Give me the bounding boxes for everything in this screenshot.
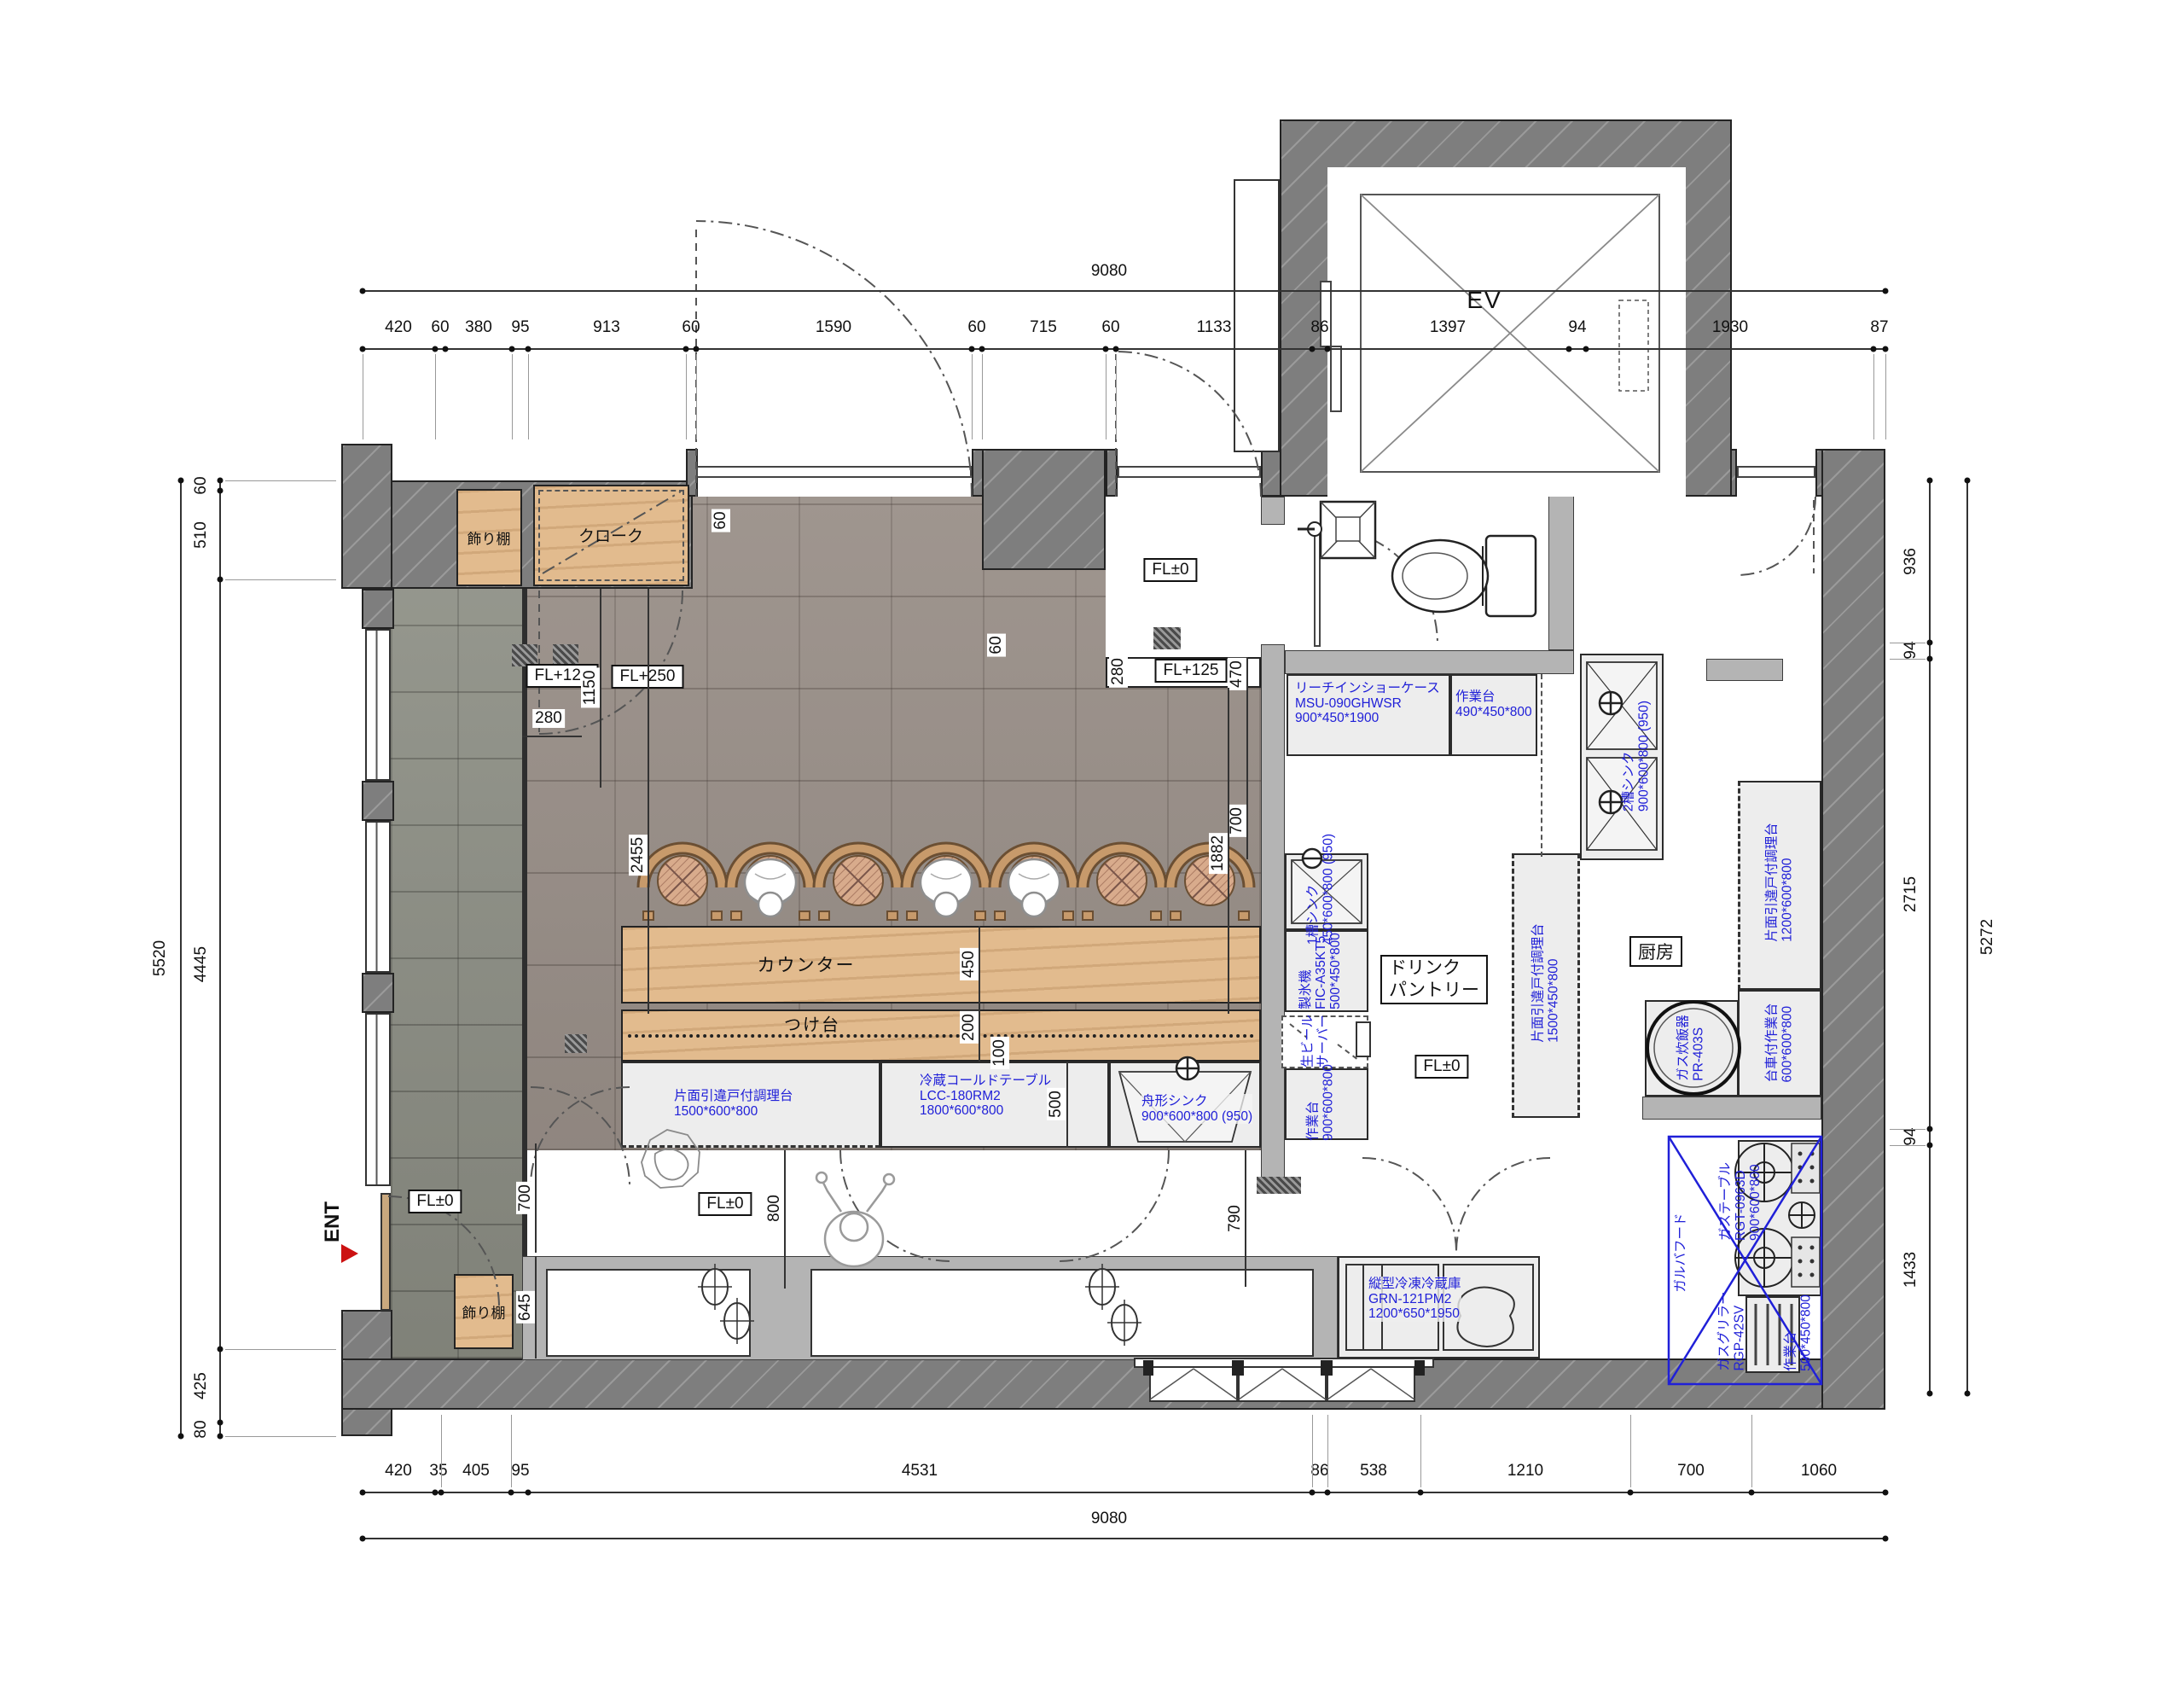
dim-500: 500 bbox=[1047, 1088, 1066, 1120]
extension-line bbox=[686, 354, 687, 439]
eq-line: GRN-121PM2 bbox=[1368, 1292, 1461, 1307]
eq-cold-table-label: 冷蔵コールドテーブル LCC-180RM2 1800*600*800 bbox=[920, 1073, 1051, 1119]
extension-line bbox=[1630, 1415, 1631, 1487]
wall-stub bbox=[565, 1034, 587, 1053]
dim-bottom-3: 95 bbox=[511, 1462, 529, 1481]
dim-top-11: 86 bbox=[1310, 318, 1328, 337]
dim-dot bbox=[1310, 1490, 1316, 1496]
service-aisle-floor bbox=[522, 1150, 1261, 1256]
dim-dot bbox=[218, 488, 224, 494]
dim-line bbox=[535, 1256, 537, 1358]
dim-line bbox=[1966, 480, 1968, 1393]
dim-dot bbox=[1927, 478, 1933, 484]
dim-dot bbox=[443, 346, 449, 352]
dim-dot bbox=[1965, 478, 1971, 484]
dim-280b: 280 bbox=[1109, 655, 1128, 688]
dim-line bbox=[600, 589, 601, 788]
eq-cabinet-a-label: 片面引違戸付調理台 1500*450*800 bbox=[1531, 923, 1561, 1043]
eq-line: 1200*600*800 bbox=[1780, 823, 1795, 942]
dim-bottom-2: 405 bbox=[462, 1462, 490, 1481]
dim-dot bbox=[1927, 1391, 1933, 1397]
extension-line bbox=[1751, 1415, 1752, 1487]
dim-line bbox=[522, 736, 582, 737]
dim-right-2: 2715 bbox=[1902, 876, 1920, 912]
dim-overall-left: 5520 bbox=[151, 940, 170, 976]
dim-top-5: 60 bbox=[682, 318, 700, 337]
dim-overall-bottom: 9080 bbox=[1091, 1510, 1127, 1528]
eq-line: 作業台 bbox=[1306, 1064, 1321, 1141]
dim-dot bbox=[969, 346, 975, 352]
dim-dot bbox=[526, 346, 531, 352]
dim-top-6: 1590 bbox=[816, 318, 851, 337]
eq-line: 600*600*800 bbox=[1780, 1003, 1795, 1082]
dim-dot bbox=[360, 1490, 366, 1496]
dim-dot bbox=[508, 1490, 514, 1496]
dim-line bbox=[1245, 1150, 1246, 1287]
label-fl0-corridor: FL±0 bbox=[408, 1190, 462, 1213]
dim-top-10: 1133 bbox=[1197, 318, 1232, 337]
dim-280a: 280 bbox=[532, 709, 565, 728]
left-glazing-a bbox=[365, 629, 391, 781]
toilet-door-leaf bbox=[1314, 527, 1321, 647]
dim-bottom-4: 4531 bbox=[902, 1462, 938, 1481]
dim-bottom-8: 700 bbox=[1677, 1462, 1705, 1481]
eq-line: 1500*600*800 bbox=[674, 1104, 793, 1120]
ev-hall-notch bbox=[1234, 179, 1280, 452]
eq-line: 1800*600*800 bbox=[920, 1103, 1051, 1119]
dim-2455: 2455 bbox=[629, 835, 648, 876]
entrance-door-leaf bbox=[380, 1193, 391, 1311]
dim-dot bbox=[1883, 1490, 1889, 1496]
dim-dot bbox=[1628, 1490, 1634, 1496]
dim-bottom-0: 420 bbox=[385, 1462, 412, 1481]
dim-line bbox=[979, 926, 980, 1062]
eq-line: 900*600*800 (950) bbox=[1141, 1109, 1252, 1125]
extension-line bbox=[1890, 1145, 1926, 1146]
extension-line bbox=[441, 1415, 442, 1487]
eq-line: 1200*650*1950 bbox=[1368, 1306, 1461, 1322]
label-kitchen: 厨房 bbox=[1629, 936, 1682, 967]
dim-dot bbox=[683, 346, 689, 352]
extension-line bbox=[511, 1415, 512, 1487]
dim-line bbox=[1929, 480, 1931, 1393]
wall-corridor-upper bbox=[1261, 497, 1285, 525]
extension-line bbox=[1106, 354, 1107, 439]
dim-line bbox=[363, 290, 1885, 292]
dim-dot bbox=[218, 1347, 224, 1353]
dim-dot bbox=[218, 478, 224, 484]
dim-right-0: 936 bbox=[1902, 548, 1920, 575]
eq-line: 片面引違戸付調理台 bbox=[674, 1089, 793, 1104]
eq-line: 2槽シンク bbox=[1622, 701, 1637, 812]
tsukedai-dotted-line bbox=[628, 1034, 1254, 1038]
left-pillar-3 bbox=[362, 973, 394, 1013]
extension-line bbox=[225, 480, 336, 481]
dim-dot bbox=[979, 346, 985, 352]
dim-left-4: 80 bbox=[192, 1420, 211, 1438]
dim-dot bbox=[1927, 656, 1933, 662]
eq-line: サーバー bbox=[1316, 1015, 1331, 1068]
extension-line bbox=[225, 1436, 336, 1437]
eq-line: 作業台 bbox=[1784, 1294, 1799, 1371]
eq-hood-label: ガルバフード bbox=[1673, 1213, 1688, 1292]
dim-60a: 60 bbox=[712, 509, 730, 532]
eq-rice-cooker-label: ガス炊飯器 PR-403S bbox=[1676, 1015, 1706, 1081]
dim-200: 200 bbox=[960, 1011, 979, 1044]
dim-450: 450 bbox=[960, 948, 979, 980]
wall-left-top-corner bbox=[341, 444, 392, 589]
dim-top-2: 380 bbox=[465, 318, 492, 337]
eq-line: 500*450*800 bbox=[1798, 1294, 1814, 1371]
extension-line bbox=[435, 354, 436, 439]
wall-stub bbox=[1257, 1177, 1301, 1194]
dim-dot bbox=[1310, 346, 1316, 352]
dim-dot bbox=[1113, 346, 1119, 352]
wall-right bbox=[1821, 449, 1885, 1410]
dim-dot bbox=[218, 1434, 224, 1440]
dim-470: 470 bbox=[1228, 658, 1246, 690]
eq-beer-server-label: 生ビール サーバー bbox=[1301, 1015, 1331, 1068]
dim-700a: 700 bbox=[1228, 805, 1246, 837]
top-door-frame-3 bbox=[1737, 466, 1815, 478]
eq-worktable900-label: 作業台 900*600*800 bbox=[1306, 1064, 1336, 1141]
dim-dot bbox=[1103, 346, 1109, 352]
dim-line bbox=[1246, 738, 1248, 859]
eq-freezer-label: 縦型冷凍冷蔵庫 GRN-121PM2 1200*650*1950 bbox=[1368, 1277, 1461, 1322]
extension-line bbox=[1312, 1415, 1313, 1487]
dim-line bbox=[219, 480, 221, 1436]
dim-dot bbox=[178, 1434, 184, 1440]
eq-line: 900*600*800 bbox=[1321, 1064, 1336, 1141]
label-ent: ENT bbox=[321, 1201, 345, 1242]
toilet-wall-bottom bbox=[1285, 650, 1574, 674]
eq-line: ガス炊飯器 bbox=[1676, 1015, 1692, 1081]
extension-line bbox=[512, 354, 513, 439]
kitchen-dashed-divider bbox=[1541, 674, 1542, 857]
bottom-niche-1 bbox=[546, 1269, 751, 1357]
label-drink-line2: パントリー bbox=[1389, 980, 1479, 1002]
corridor-divider-line bbox=[522, 589, 527, 1358]
dim-dot bbox=[360, 288, 366, 294]
extension-line bbox=[696, 354, 697, 439]
eq-line: 500*450*800 bbox=[1328, 933, 1344, 1009]
dim-line bbox=[363, 1492, 1885, 1493]
dim-bottom-5: 86 bbox=[1310, 1462, 1328, 1481]
eq-line: MSU-090GHWSR bbox=[1295, 696, 1440, 712]
dim-left-3: 425 bbox=[192, 1372, 211, 1399]
eq-line: 900*600*800 bbox=[1748, 1162, 1763, 1241]
eq-gas-table-label: ガステーブル RGT-0963D 900*600*800 bbox=[1718, 1162, 1763, 1241]
wall-bottom bbox=[341, 1358, 1885, 1410]
ev-shaft-interior bbox=[1327, 167, 1686, 497]
eq-two-bowl-sink-label: 2槽シンク 900*600*800 (950) bbox=[1622, 701, 1652, 812]
dim-dot bbox=[439, 1490, 444, 1496]
eq-line: ガスグリラー bbox=[1717, 1291, 1733, 1370]
eq-line: 台車付作業台 bbox=[1765, 1003, 1780, 1082]
eq-line: リーチインショーケース bbox=[1295, 681, 1440, 696]
extension-line bbox=[1885, 354, 1886, 439]
dim-top-0: 420 bbox=[385, 318, 412, 337]
eq-line: 縦型冷凍冷蔵庫 bbox=[1368, 1277, 1461, 1292]
dim-line bbox=[535, 1143, 537, 1253]
label-counter: カウンター bbox=[758, 951, 856, 977]
floor-plan-canvas: クローク 飾り棚 飾り棚 EV カウンター つけ台 FL±0 FL±0 FL±0… bbox=[0, 0, 2184, 1693]
eq-line: 舟形シンク bbox=[1141, 1094, 1252, 1109]
dim-top-9: 60 bbox=[1101, 318, 1119, 337]
label-fl0-aisle: FL±0 bbox=[698, 1192, 752, 1216]
dim-top-12: 1397 bbox=[1430, 318, 1466, 337]
dim-top-8: 715 bbox=[1030, 318, 1057, 337]
dim-right-4: 1433 bbox=[1902, 1252, 1920, 1288]
eq-line: 生ビール bbox=[1301, 1015, 1316, 1068]
wall-top-post-2 bbox=[972, 449, 984, 497]
extension-line bbox=[363, 354, 363, 439]
ent-arrow-icon bbox=[341, 1244, 358, 1263]
wall-stub bbox=[1153, 627, 1181, 649]
counter-top bbox=[621, 926, 1261, 1004]
dim-1150: 1150 bbox=[581, 668, 600, 708]
wall-corridor-lower bbox=[1261, 644, 1285, 1186]
eq-griller-label: ガスグリラー RGP-42SV bbox=[1717, 1291, 1747, 1370]
dim-100: 100 bbox=[990, 1037, 1009, 1069]
gas-zone-sill bbox=[1642, 1097, 1821, 1120]
dim-top-14: 1930 bbox=[1712, 318, 1748, 337]
label-drink-pantry: ドリンク パントリー bbox=[1380, 955, 1488, 1004]
extension-line bbox=[972, 354, 973, 439]
dim-overall-top: 9080 bbox=[1091, 262, 1127, 281]
label-shelf-bottom: 飾り棚 bbox=[456, 1300, 513, 1324]
dim-dot bbox=[1871, 346, 1877, 352]
extension-line bbox=[1890, 643, 1926, 643]
eq-line: 作業台 bbox=[1455, 689, 1532, 705]
label-fl0-vestibule: FL±0 bbox=[1143, 558, 1197, 582]
dim-dot bbox=[1965, 1391, 1971, 1397]
dim-right-3: 94 bbox=[1902, 1127, 1920, 1145]
dim-line bbox=[784, 1150, 786, 1289]
left-glazing-c bbox=[365, 1013, 391, 1186]
eq-line: 900*600*800 (950) bbox=[1636, 701, 1652, 812]
eq-line: 冷蔵コールドテーブル bbox=[920, 1073, 1051, 1089]
extension-line bbox=[1873, 354, 1874, 439]
wall-top-pier bbox=[982, 449, 1106, 570]
dim-line bbox=[180, 480, 182, 1436]
dim-top-15: 87 bbox=[1870, 318, 1888, 337]
dim-dot bbox=[433, 346, 439, 352]
extension-line bbox=[528, 354, 529, 439]
extension-line bbox=[1890, 1129, 1926, 1130]
dim-bottom-1: 35 bbox=[429, 1462, 447, 1481]
dim-dot bbox=[1583, 346, 1589, 352]
eq-showcase-label: リーチインショーケース MSU-090GHWSR 900*450*1900 bbox=[1295, 681, 1440, 726]
eq-cabinet-b-label: 片面引違戸付調理台 1200*600*800 bbox=[1765, 823, 1795, 942]
eq-line: 490*450*800 bbox=[1455, 705, 1532, 720]
extension-line bbox=[1116, 354, 1117, 439]
dim-dot bbox=[1927, 1126, 1933, 1132]
extension-line bbox=[982, 354, 983, 439]
left-glazing-b bbox=[365, 821, 391, 973]
eq-line: FIC-A35KT5 bbox=[1313, 933, 1328, 1009]
label-shelf-top: 飾り棚 bbox=[461, 527, 518, 550]
dim-line bbox=[1228, 688, 1229, 1014]
eq-line: PR-403S bbox=[1691, 1015, 1706, 1081]
eq-line: 450*600*800 (950) bbox=[1321, 834, 1336, 945]
dim-top-1: 60 bbox=[431, 318, 449, 337]
left-pillar-1 bbox=[362, 589, 394, 629]
dim-dot bbox=[1883, 346, 1889, 352]
eq-line: ガステーブル bbox=[1718, 1162, 1734, 1241]
dim-dot bbox=[360, 346, 366, 352]
dim-bottom-9: 1060 bbox=[1801, 1462, 1837, 1481]
dim-dot bbox=[526, 1490, 531, 1496]
dim-dot bbox=[1749, 1490, 1755, 1496]
dim-line bbox=[363, 348, 1885, 350]
dim-dot bbox=[218, 577, 224, 583]
dim-left-2: 4445 bbox=[192, 946, 211, 982]
dim-dot bbox=[178, 478, 184, 484]
top-door-frame-1 bbox=[696, 466, 972, 478]
left-pillar-2 bbox=[362, 781, 394, 821]
eq-line: LCC-180RM2 bbox=[920, 1089, 1051, 1104]
dim-dot bbox=[1927, 1143, 1933, 1149]
eq-ice-machine-label: 製氷機 FIC-A35KT5 500*450*800 bbox=[1298, 933, 1344, 1009]
dim-dot bbox=[433, 1490, 439, 1496]
dim-800: 800 bbox=[765, 1192, 784, 1225]
eq-boat-sink-label: 舟形シンク 900*600*800 (950) bbox=[1141, 1094, 1252, 1124]
label-fl0-kitchen: FL±0 bbox=[1414, 1055, 1468, 1079]
eq-cart-worktable-label: 台車付作業台 600*600*800 bbox=[1765, 1003, 1795, 1082]
dim-dot bbox=[1883, 288, 1889, 294]
dim-dot bbox=[1883, 1536, 1889, 1542]
dim-645: 645 bbox=[516, 1291, 535, 1324]
dim-top-3: 95 bbox=[511, 318, 529, 337]
extension-line bbox=[1420, 1415, 1421, 1487]
dim-dot bbox=[1927, 640, 1933, 646]
dim-1882: 1882 bbox=[1209, 833, 1228, 874]
dim-line bbox=[648, 589, 649, 1014]
dim-dot bbox=[1566, 346, 1572, 352]
top-door-frame-2 bbox=[1118, 466, 1261, 478]
dim-left-0: 60 bbox=[192, 476, 211, 494]
dim-60b: 60 bbox=[987, 633, 1006, 656]
dim-bottom-6: 538 bbox=[1360, 1462, 1387, 1481]
extension-line bbox=[225, 1349, 336, 1350]
wall-top-post-3 bbox=[1106, 449, 1118, 497]
extension-line bbox=[225, 579, 336, 580]
dim-left-1: 510 bbox=[192, 521, 211, 549]
eq-line: 900*450*1900 bbox=[1295, 711, 1440, 726]
upper-room-sill bbox=[1706, 659, 1783, 681]
eq-worktable490-label: 作業台 490*450*800 bbox=[1455, 689, 1532, 719]
dim-dot bbox=[218, 1420, 224, 1426]
dim-top-13: 94 bbox=[1568, 318, 1586, 337]
dim-line bbox=[1246, 657, 1248, 738]
eq-back-counter-cabinet-label: 片面引違戸付調理台 1500*600*800 bbox=[674, 1089, 793, 1119]
dim-bottom-7: 1210 bbox=[1507, 1462, 1543, 1481]
dim-line bbox=[1066, 1062, 1068, 1148]
label-cloak: クローク bbox=[572, 523, 650, 548]
eq-line: 1槽シンク bbox=[1306, 834, 1321, 945]
dim-dot bbox=[1325, 1490, 1331, 1496]
dim-line bbox=[363, 1538, 1885, 1539]
dim-top-4: 913 bbox=[593, 318, 620, 337]
extension-line bbox=[1890, 659, 1926, 660]
entrance-corridor-floor bbox=[391, 589, 522, 1358]
dim-dot bbox=[1418, 1490, 1424, 1496]
dim-dot bbox=[1325, 346, 1331, 352]
bottom-niche-2 bbox=[810, 1269, 1314, 1357]
dim-790: 790 bbox=[1226, 1202, 1245, 1235]
eq-line: ガルバフード bbox=[1673, 1213, 1688, 1292]
eq-line: RGP-42SV bbox=[1732, 1291, 1747, 1370]
eq-line: 製氷機 bbox=[1298, 933, 1314, 1009]
eq-line: RGT-0963D bbox=[1733, 1162, 1748, 1241]
dim-overall-right: 5272 bbox=[1978, 919, 1997, 955]
eq-worktable500-label: 作業台 500*450*800 bbox=[1784, 1294, 1814, 1371]
eq-line: 1500*450*800 bbox=[1546, 923, 1561, 1043]
dim-dot bbox=[694, 346, 700, 352]
eq-line: 片面引違戸付調理台 bbox=[1765, 823, 1780, 942]
dim-dot bbox=[360, 1536, 366, 1542]
dim-right-1: 94 bbox=[1902, 641, 1920, 659]
dim-top-7: 60 bbox=[967, 318, 985, 337]
label-fl125-vestibule: FL+125 bbox=[1155, 659, 1228, 683]
dim-700b: 700 bbox=[516, 1182, 535, 1214]
dim-dot bbox=[509, 346, 515, 352]
label-tsukedai: つけ台 bbox=[784, 1011, 840, 1036]
eq-one-bowl-sink-label: 1槽シンク 450*600*800 (950) bbox=[1306, 834, 1336, 945]
label-drink-line1: ドリンク bbox=[1389, 957, 1479, 980]
eq-line: 片面引違戸付調理台 bbox=[1531, 923, 1547, 1043]
extension-line bbox=[1327, 1415, 1328, 1487]
